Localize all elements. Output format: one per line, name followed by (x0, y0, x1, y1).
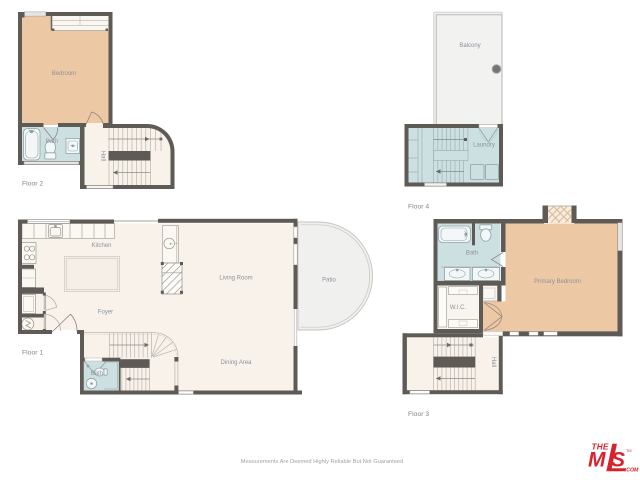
svg-text:M: M (588, 449, 606, 472)
svg-text:Measurements Are Deemed Highly: Measurements Are Deemed Highly Reliable … (241, 459, 404, 465)
svg-text:.COM: .COM (625, 468, 639, 474)
svg-text:Dining Area: Dining Area (220, 360, 252, 366)
svg-text:W.I.C.: W.I.C. (450, 305, 467, 311)
svg-text:Floor 2: Floor 2 (22, 181, 43, 188)
svg-text:TM: TM (626, 449, 631, 453)
svg-text:Foyer: Foyer (98, 310, 113, 316)
svg-text:Bedroom: Bedroom (52, 71, 76, 77)
svg-text:Laundry: Laundry (473, 143, 495, 149)
svg-text:Living Room: Living Room (219, 276, 252, 282)
svg-text:Bath: Bath (46, 139, 58, 145)
svg-text:Floor 4: Floor 4 (408, 204, 429, 211)
svg-text:Floor 1: Floor 1 (22, 350, 43, 357)
svg-text:Hall: Hall (490, 357, 496, 367)
svg-text:Bath: Bath (91, 371, 103, 377)
svg-text:Hall: Hall (100, 151, 106, 161)
svg-text:Patio: Patio (322, 278, 336, 284)
svg-text:Balcony: Balcony (459, 43, 480, 49)
svg-text:Bath: Bath (466, 251, 478, 257)
svg-text:Primary Bedroom: Primary Bedroom (534, 279, 581, 285)
svg-text:Floor 3: Floor 3 (408, 411, 429, 418)
svg-text:Kitchen: Kitchen (91, 243, 111, 249)
